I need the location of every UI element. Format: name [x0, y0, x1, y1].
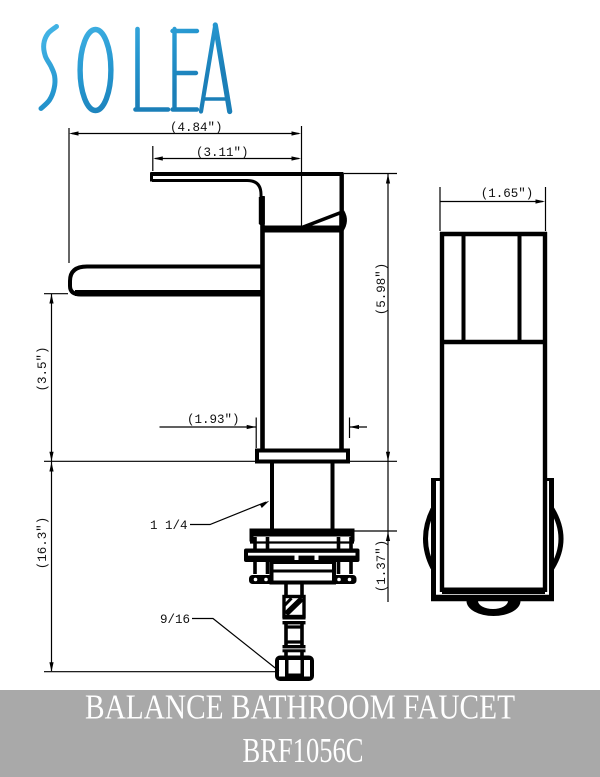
svg-text:9/16: 9/16: [160, 613, 190, 627]
svg-text:(3.11"): (3.11"): [196, 146, 249, 160]
svg-text:1 1/4: 1 1/4: [150, 519, 188, 533]
svg-text:(1.65"): (1.65"): [481, 187, 534, 201]
svg-text:BALANCE BATHROOM FAUCET: BALANCE BATHROOM FAUCET: [85, 688, 515, 727]
svg-text:(16.3"): (16.3"): [36, 517, 50, 570]
svg-text:(5.98"): (5.98"): [375, 263, 389, 316]
svg-text:BRF1056C: BRF1056C: [243, 731, 364, 770]
svg-text:(3.5"): (3.5"): [36, 346, 50, 391]
svg-text:(1.93"): (1.93"): [187, 413, 240, 427]
svg-text:(4.84"): (4.84"): [170, 121, 223, 135]
svg-text:(1.37"): (1.37"): [375, 540, 389, 593]
